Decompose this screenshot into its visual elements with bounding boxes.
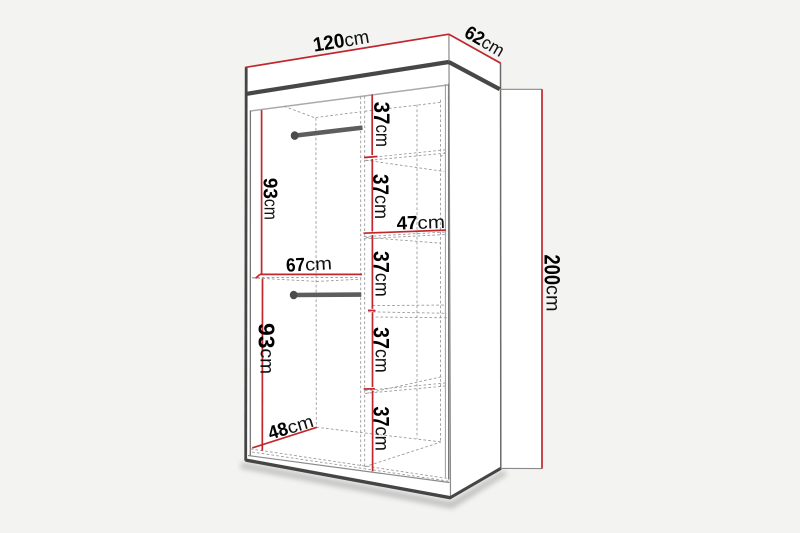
svg-text:37cm: 37cm — [369, 251, 394, 297]
svg-text:93cm: 93cm — [254, 323, 280, 374]
svg-text:93cm: 93cm — [259, 178, 282, 220]
svg-text:37cm: 37cm — [369, 327, 394, 373]
svg-text:200cm: 200cm — [540, 255, 565, 312]
svg-text:47cm: 47cm — [396, 211, 445, 234]
svg-text:37cm: 37cm — [370, 102, 395, 147]
svg-text:37cm: 37cm — [369, 406, 394, 451]
svg-text:67cm: 67cm — [285, 253, 332, 276]
svg-text:37cm: 37cm — [369, 174, 394, 219]
